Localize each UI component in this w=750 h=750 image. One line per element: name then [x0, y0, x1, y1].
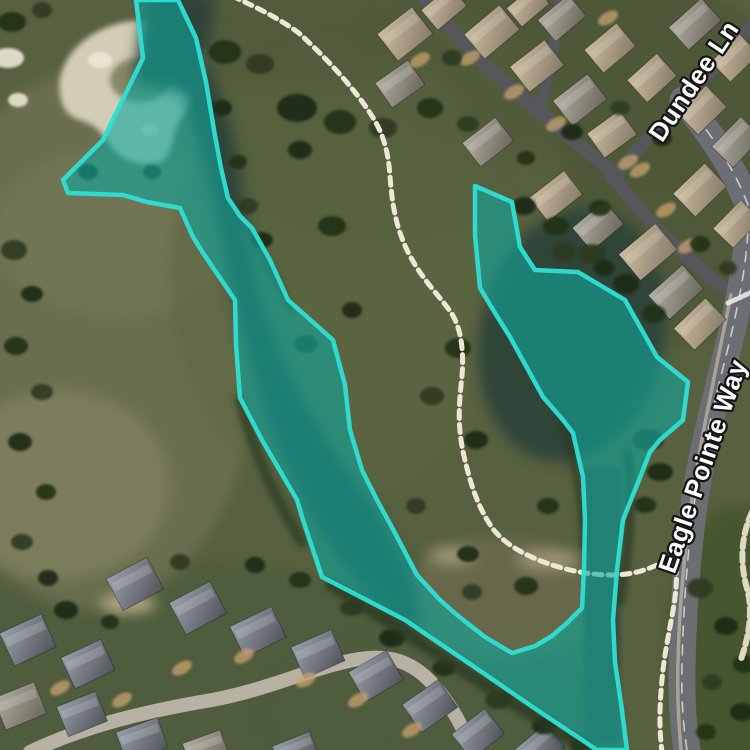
- satellite-map: Dundee Ln Eagle Pointe Way: [0, 0, 750, 750]
- map-viewport[interactable]: Dundee Ln Eagle Pointe Way: [0, 0, 750, 750]
